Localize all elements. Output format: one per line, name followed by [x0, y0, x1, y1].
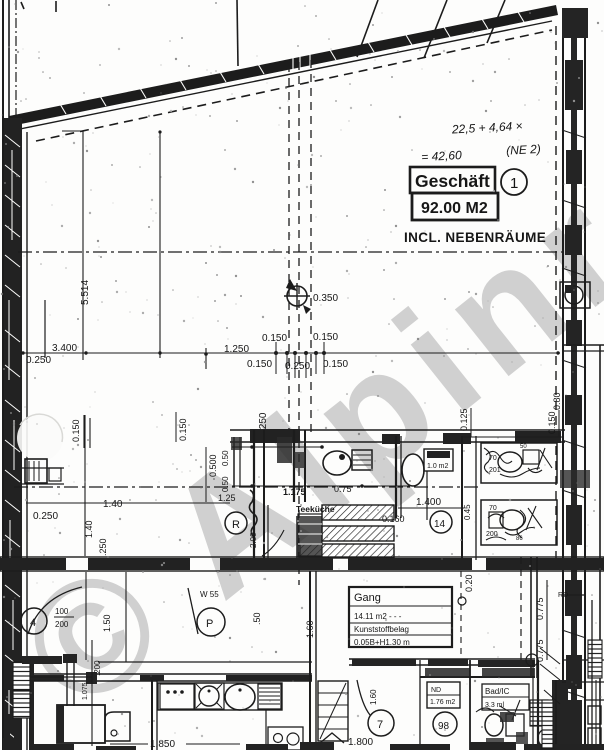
- svg-text:Gang: Gang: [354, 592, 381, 604]
- svg-text:1.850: 1.850: [150, 739, 175, 750]
- svg-text:70: 70: [489, 455, 497, 462]
- svg-text:1.075: 1.075: [82, 682, 89, 700]
- svg-text:0.500: 0.500: [208, 454, 218, 477]
- svg-text:.50: .50: [252, 612, 262, 625]
- svg-text:100: 100: [55, 607, 69, 616]
- svg-text:1.40: 1.40: [103, 499, 123, 510]
- svg-text:50: 50: [520, 444, 527, 450]
- svg-text:5.514: 5.514: [80, 280, 91, 305]
- svg-text:0.150: 0.150: [262, 333, 287, 344]
- svg-text:1.76 m2: 1.76 m2: [430, 699, 455, 706]
- svg-text:200: 200: [55, 620, 69, 629]
- svg-text:0.350: 0.350: [313, 293, 338, 304]
- svg-text:0.150: 0.150: [547, 411, 557, 434]
- svg-text:R: R: [232, 519, 240, 531]
- svg-text:201: 201: [489, 467, 501, 474]
- svg-text:0.20: 0.20: [464, 574, 474, 592]
- svg-text:3.400: 3.400: [52, 343, 77, 354]
- svg-text:0.05B+H1.30 m: 0.05B+H1.30 m: [354, 638, 410, 647]
- svg-text:0.250: 0.250: [33, 511, 58, 522]
- svg-text:1.40: 1.40: [84, 520, 94, 538]
- svg-text:14: 14: [434, 519, 446, 530]
- svg-text:Geschäft: Geschäft: [415, 171, 490, 191]
- svg-text:70: 70: [489, 505, 497, 512]
- svg-text:7: 7: [377, 719, 383, 731]
- svg-text:1.400: 1.400: [416, 497, 441, 508]
- svg-text:W 55: W 55: [200, 590, 219, 599]
- svg-text:1.175: 1.175: [283, 487, 306, 497]
- svg-text:ND: ND: [431, 687, 441, 694]
- svg-text:1.25: 1.25: [218, 493, 236, 503]
- svg-text:98: 98: [438, 721, 450, 732]
- svg-text:RD: RD: [558, 592, 568, 599]
- svg-text:1.800: 1.800: [348, 737, 373, 748]
- svg-text:.250: .250: [98, 538, 108, 556]
- svg-text:1.0 m2: 1.0 m2: [427, 463, 449, 470]
- svg-text:0.150: 0.150: [71, 419, 81, 442]
- svg-text:0.80: 0.80: [552, 392, 562, 410]
- svg-text:0.150: 0.150: [323, 359, 348, 370]
- svg-text:0.50: 0.50: [221, 450, 230, 466]
- svg-text:0.250: 0.250: [26, 355, 51, 366]
- svg-text:92.00 M2: 92.00 M2: [421, 200, 488, 217]
- svg-text:P: P: [206, 618, 213, 630]
- svg-text:0.150: 0.150: [313, 332, 338, 343]
- svg-text:= 42,60: = 42,60: [421, 148, 462, 164]
- svg-text:0.250: 0.250: [285, 361, 310, 372]
- svg-text:1: 1: [510, 175, 518, 192]
- svg-text:0.150: 0.150: [247, 359, 272, 370]
- svg-text:0.50: 0.50: [221, 476, 230, 492]
- svg-text:2.00: 2.00: [249, 532, 258, 548]
- svg-text:1.60: 1.60: [369, 689, 378, 705]
- svg-text:(NE 2): (NE 2): [506, 142, 541, 158]
- svg-text:86: 86: [516, 536, 523, 542]
- svg-text:Bad/IC: Bad/IC: [485, 687, 510, 696]
- svg-text:0.45: 0.45: [463, 504, 472, 520]
- svg-text:0.125: 0.125: [459, 408, 469, 431]
- svg-text:0.150: 0.150: [178, 418, 188, 441]
- svg-text:0.160: 0.160: [382, 514, 405, 524]
- svg-text:14.11 m2 - - -: 14.11 m2 - - -: [354, 612, 402, 621]
- svg-text:1.250: 1.250: [224, 344, 249, 355]
- svg-text:.200: .200: [93, 660, 102, 676]
- svg-text:INCL. NEBENRÄUME: INCL. NEBENRÄUME: [404, 230, 546, 245]
- svg-text:1.50: 1.50: [102, 614, 112, 632]
